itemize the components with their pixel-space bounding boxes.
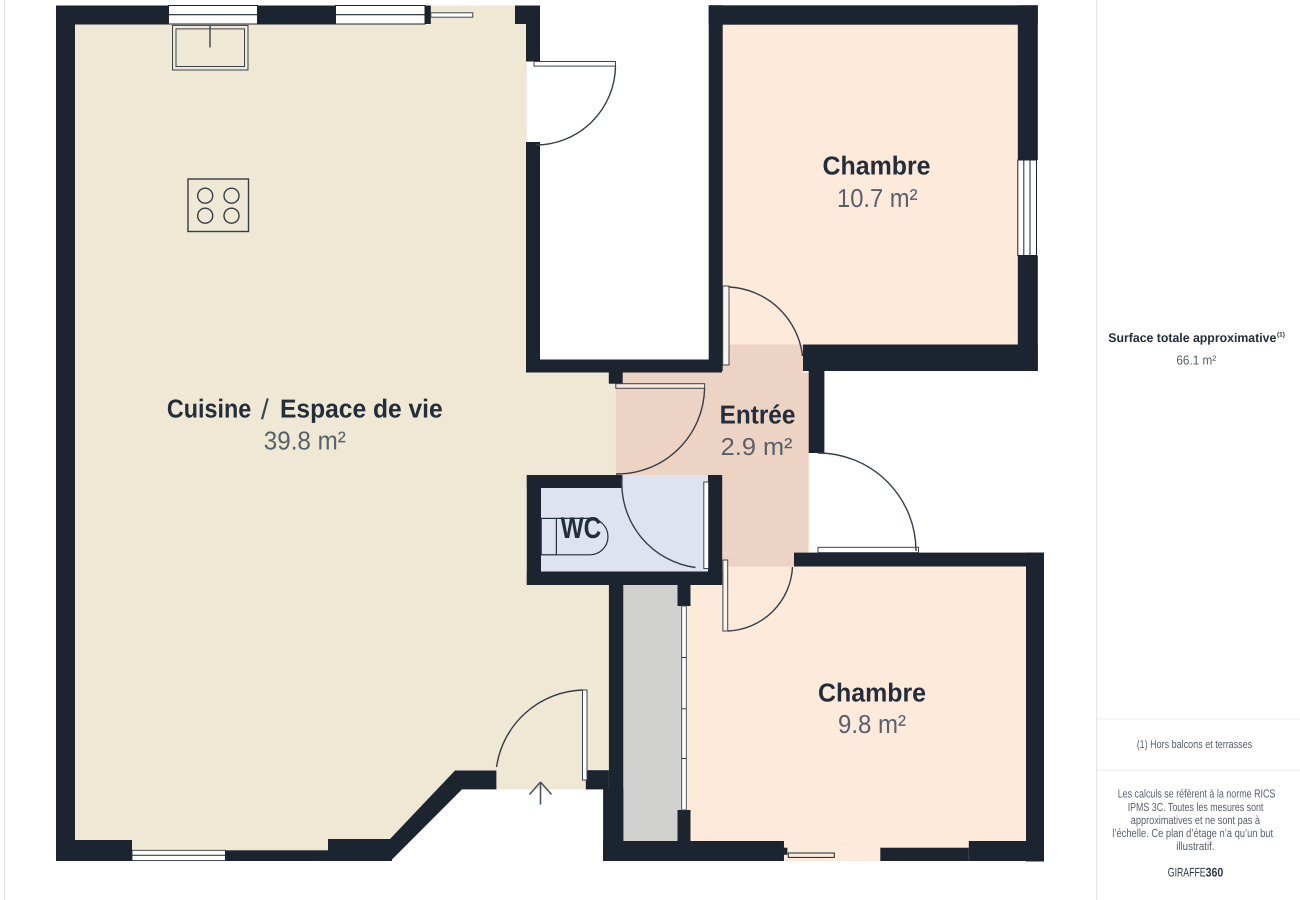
svg-text:(1): (1) [1277, 332, 1285, 339]
svg-text:2.9 m²: 2.9 m² [721, 434, 793, 461]
svg-text:66.1 m²: 66.1 m² [1176, 353, 1216, 368]
svg-text:WC: WC [561, 512, 602, 545]
svg-text:Chambre: Chambre [818, 678, 926, 708]
svg-text:illustratif.: illustratif. [1176, 840, 1214, 853]
svg-text:10.7 m²: 10.7 m² [837, 183, 918, 213]
svg-text:Chambre: Chambre [823, 151, 931, 181]
svg-text:(1) Hors balcons et terrasses: (1) Hors balcons et terrasses [1137, 739, 1253, 751]
svg-text:l’échelle. Ce plan d’étage n’a: l’échelle. Ce plan d’étage n’a qu’un but [1112, 827, 1273, 840]
svg-text:Les calculs se réfèrent à la n: Les calculs se réfèrent à la norme RICS [1118, 788, 1276, 801]
svg-text:360: 360 [1206, 866, 1224, 880]
svg-text:approximatives et ne sont pas: approximatives et ne sont pas à [1131, 814, 1261, 827]
svg-text:9.8 m²: 9.8 m² [838, 709, 906, 739]
svg-text:Espace de vie: Espace de vie [280, 394, 443, 424]
svg-text:39.8 m²: 39.8 m² [264, 426, 346, 456]
svg-text:GIRAFFE: GIRAFFE [1168, 866, 1206, 880]
svg-text:Surface totale approximative: Surface totale approximative [1108, 331, 1276, 345]
svg-text:/: / [261, 394, 269, 426]
svg-text:IPMS 3C. Toutes les mesures so: IPMS 3C. Toutes les mesures sont [1128, 801, 1264, 814]
svg-text:Entrée: Entrée [720, 400, 796, 430]
svg-text:Cuisine: Cuisine [167, 394, 251, 424]
